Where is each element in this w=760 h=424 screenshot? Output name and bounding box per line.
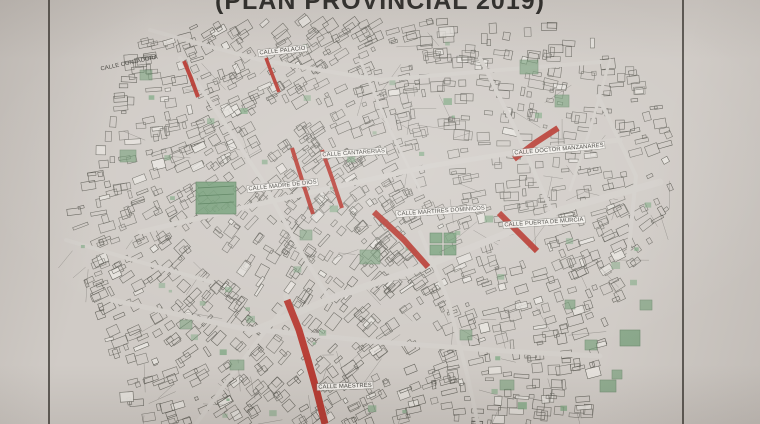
highlighted-street-calle-cantarerias-west [292,148,313,214]
photographed-plan-page: (PLAN PROVINCIAL 2019) CALLE CONTADORACA… [0,0,760,424]
city-street-map [0,0,760,424]
